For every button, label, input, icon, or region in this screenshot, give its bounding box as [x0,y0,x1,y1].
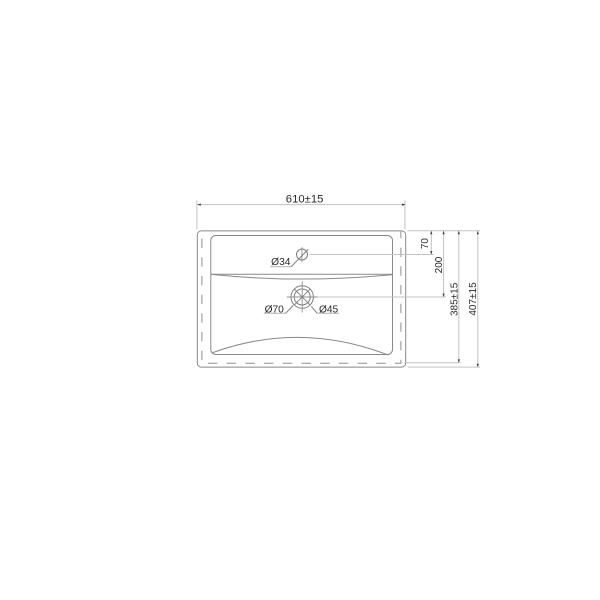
svg-text:70: 70 [420,238,431,250]
svg-text:407±15: 407±15 [468,282,479,316]
svg-text:385±15: 385±15 [450,282,461,316]
svg-text:200: 200 [434,256,445,273]
svg-text:610±15: 610±15 [286,193,324,205]
svg-text:Ø70: Ø70 [265,304,285,315]
svg-text:Ø34: Ø34 [271,257,291,268]
svg-text:Ø45: Ø45 [319,304,339,315]
